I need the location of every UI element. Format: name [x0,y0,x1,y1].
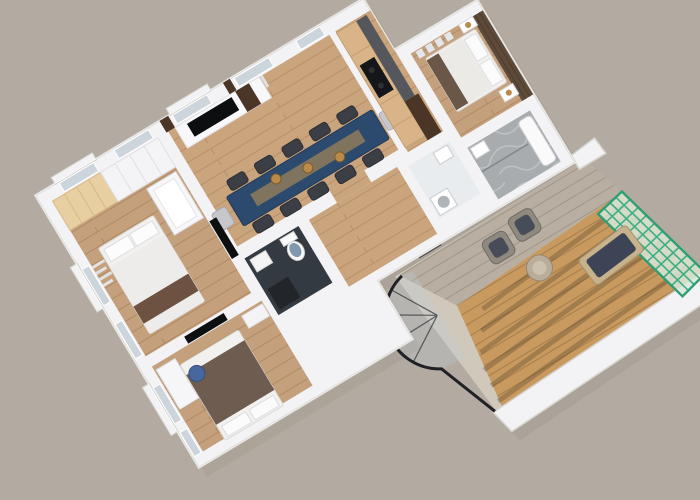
floor-plan-stage [0,0,700,500]
floor-plan-svg [0,0,700,500]
